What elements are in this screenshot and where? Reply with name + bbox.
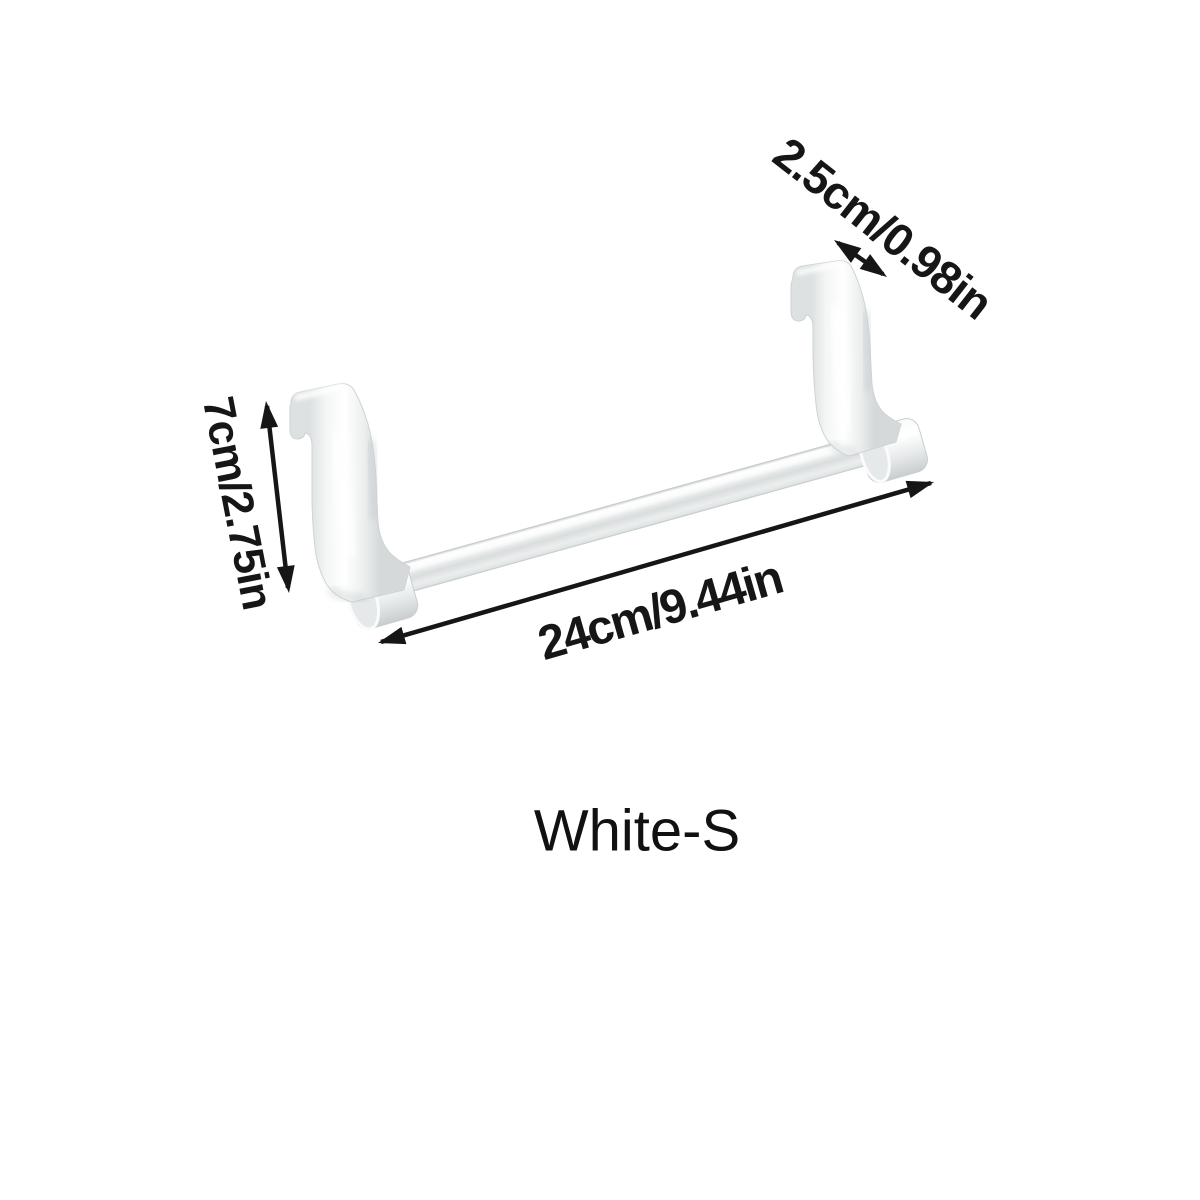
left-door-hook <box>290 384 410 602</box>
variant-label: White-S <box>534 798 740 865</box>
product-dimension-diagram: 2.5cm/0.98in 7cm/2.75in 24cm/9.44in Whit… <box>0 0 1200 1200</box>
right-door-hook <box>791 261 901 456</box>
